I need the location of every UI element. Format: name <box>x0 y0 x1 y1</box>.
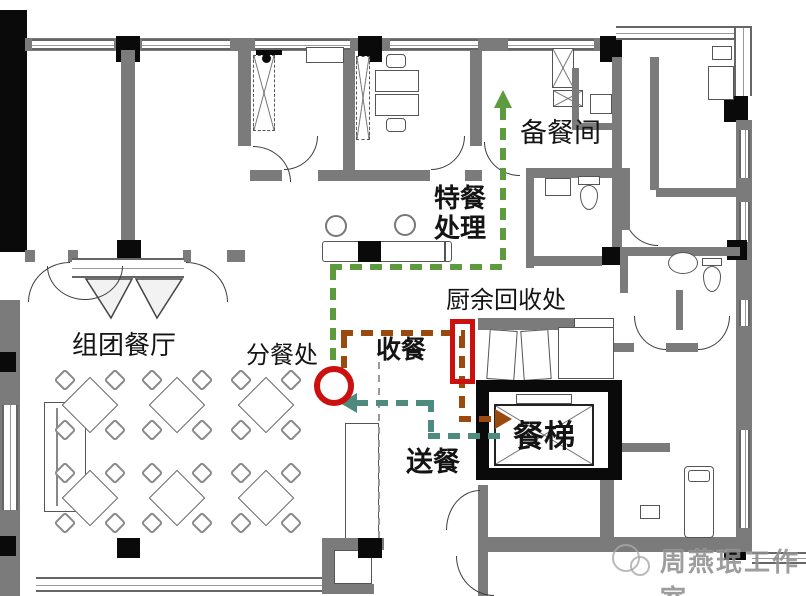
wall <box>238 50 251 146</box>
special-route-segment <box>500 108 506 268</box>
wall <box>612 57 622 247</box>
elevator-door-slot <box>516 394 572 404</box>
wall <box>666 343 698 352</box>
toilet-tank <box>702 258 722 266</box>
desk <box>375 70 419 92</box>
column <box>117 538 140 558</box>
wall <box>526 256 602 266</box>
serving-point-marker <box>314 366 354 406</box>
label-special-meal-line1: 特餐 <box>434 184 486 214</box>
label-collect-meal: 收餐 <box>376 336 426 365</box>
window <box>142 39 230 50</box>
label-deliver-meal: 送餐 <box>406 447 460 478</box>
label-food-elevator: 餐梯 <box>494 419 594 455</box>
wall <box>121 50 135 250</box>
desk <box>375 94 419 116</box>
wall <box>322 584 374 594</box>
appliance <box>590 94 612 114</box>
wall <box>650 57 659 190</box>
door-arc <box>284 136 318 170</box>
window <box>508 39 594 50</box>
pillow <box>688 470 710 482</box>
cabinet <box>712 46 732 60</box>
door-arc <box>431 136 465 170</box>
wall <box>183 250 191 262</box>
special-route-segment <box>330 264 506 270</box>
special-route-segment <box>330 268 336 372</box>
serving-counter-vertical <box>345 423 379 540</box>
window <box>739 130 750 178</box>
wall <box>600 480 614 537</box>
window <box>32 39 114 50</box>
elevator-wall <box>476 380 622 392</box>
window <box>739 202 750 242</box>
serving-counter <box>322 241 452 262</box>
label-serving-point: 分餐处 <box>246 342 318 370</box>
stool <box>394 214 416 236</box>
stool <box>325 215 347 237</box>
wall <box>465 170 482 181</box>
wall <box>622 168 630 230</box>
label-prep-room: 备餐间 <box>520 118 601 149</box>
dining-table <box>52 460 128 536</box>
floor-plan: 备餐间 特餐 处理 厨余回收处 收餐 分餐处 组团餐厅 送餐 餐梯 周燕珉工作室 <box>0 0 806 596</box>
label-special-meal: 特餐 处理 <box>434 184 486 244</box>
collect-route-segment <box>341 336 347 372</box>
wardrobe <box>356 56 370 140</box>
dining-table <box>139 460 215 536</box>
column <box>0 536 16 556</box>
wall <box>656 188 740 197</box>
collect-route-segment <box>459 416 497 422</box>
door-arc <box>186 262 228 302</box>
column <box>602 247 622 265</box>
wall <box>0 10 27 252</box>
counter-endcap <box>444 241 446 262</box>
dining-table <box>139 367 215 443</box>
wheelchair-icon <box>262 54 271 63</box>
window <box>2 405 18 510</box>
column <box>358 538 382 558</box>
column <box>0 352 16 372</box>
sink <box>545 178 571 196</box>
window <box>616 26 752 40</box>
wall <box>526 168 534 268</box>
lobby-nook <box>558 327 614 379</box>
dining-table <box>228 367 304 443</box>
wardrobe <box>253 55 275 131</box>
chair <box>386 118 406 132</box>
side-table <box>640 505 660 519</box>
studio-logo-icon <box>630 556 650 576</box>
grid-reference-line <box>378 362 380 544</box>
wall <box>343 50 355 172</box>
window <box>739 430 750 528</box>
toilet-bowl <box>703 266 721 292</box>
door-arc <box>698 316 730 350</box>
wall <box>227 250 245 262</box>
waste-recycle-window-marker <box>450 319 475 384</box>
wall <box>614 343 634 352</box>
dining-table <box>52 367 128 443</box>
window <box>390 39 478 50</box>
toilet-tank <box>578 176 600 185</box>
elevator-wall <box>608 380 622 480</box>
elevator-door-leaf <box>486 329 517 381</box>
wall <box>676 290 683 330</box>
elevator-wall <box>476 468 622 480</box>
dining-table <box>228 460 304 536</box>
toilet-bowl <box>580 185 598 210</box>
bed <box>708 66 734 100</box>
special-route-arrowhead <box>494 90 512 108</box>
window <box>739 300 750 326</box>
elevator-wall <box>476 380 489 480</box>
window <box>734 28 752 96</box>
chair <box>386 54 406 68</box>
sink <box>668 252 698 274</box>
label-special-meal-line2: 处理 <box>434 214 486 244</box>
door-arc <box>634 316 666 350</box>
wall <box>470 50 482 146</box>
door-arc <box>446 490 480 530</box>
wall <box>25 250 35 262</box>
label-waste-recycle: 厨余回收处 <box>446 287 566 315</box>
column <box>358 241 381 262</box>
desk <box>306 47 344 63</box>
studio-watermark: 周燕珉工作室 <box>660 542 806 596</box>
wall <box>318 170 430 181</box>
deliver-route-segment <box>356 400 434 406</box>
door-arc <box>456 556 494 596</box>
label-group-dining: 组团餐厅 <box>72 331 176 361</box>
wall <box>250 170 282 181</box>
kitchen-counter <box>552 48 574 88</box>
wall <box>620 247 628 293</box>
window <box>36 577 330 592</box>
elevator-door-leaf <box>520 329 551 381</box>
